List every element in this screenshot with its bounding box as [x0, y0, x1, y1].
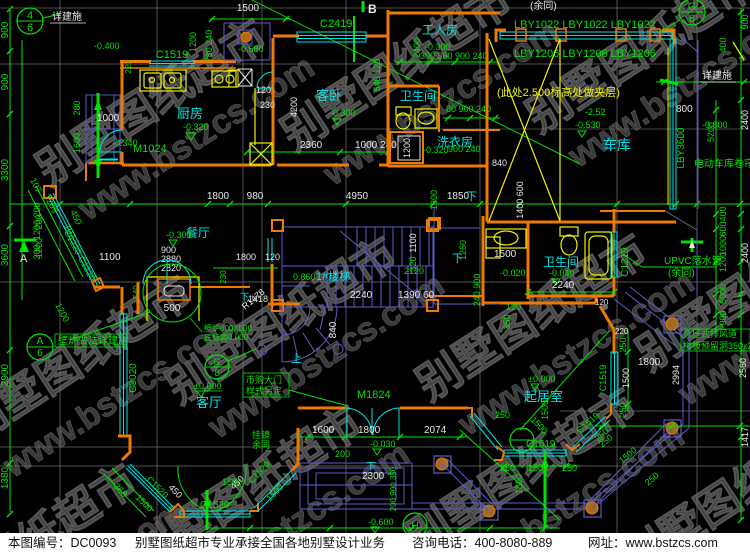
svg-text:-2.52: -2.52: [585, 107, 606, 117]
svg-text:840: 840: [328, 321, 339, 338]
svg-text:(余同): (余同): [668, 266, 695, 279]
svg-text:540 120: 540 120: [372, 59, 382, 92]
svg-text:-0.400: -0.400: [94, 41, 120, 51]
svg-text:G: G: [688, 1, 697, 13]
svg-text:B: B: [368, 2, 377, 16]
svg-text:2360: 2360: [300, 140, 323, 151]
svg-text:80 900 240: 80 900 240: [446, 104, 491, 114]
svg-text:(余同): (余同): [530, 0, 557, 12]
svg-text:250: 250: [618, 337, 628, 352]
svg-text:1100: 1100: [408, 233, 418, 252]
svg-text:C1519: C1519: [156, 49, 188, 61]
svg-text:LBY3600: LBY3600: [676, 127, 687, 169]
svg-text:上: 上: [291, 352, 302, 365]
svg-text:600: 600: [718, 221, 728, 236]
svg-text:2074: 2074: [424, 425, 447, 436]
svg-text:车库: 车库: [603, 137, 631, 153]
svg-text:120: 120: [506, 302, 521, 312]
svg-text:5000: 5000: [718, 284, 728, 304]
svg-text:2400: 2400: [740, 243, 750, 263]
svg-text:本图编号：DC0093: 本图编号：DC0093: [8, 535, 116, 550]
svg-text:4950: 4950: [346, 191, 369, 202]
svg-text:-0.580: -0.580: [238, 44, 264, 54]
svg-text:M1024: M1024: [133, 143, 167, 155]
svg-text:1100: 1100: [99, 252, 121, 263]
svg-text:厨房: 厨房: [177, 106, 203, 121]
svg-text:200: 200: [32, 244, 42, 259]
svg-text:-0.020: -0.020: [500, 268, 526, 278]
svg-text:-0.530: -0.530: [575, 120, 601, 130]
svg-text:详建施: 详建施: [52, 10, 82, 23]
svg-text:900: 900: [0, 21, 11, 38]
svg-text:780 240: 780 240: [204, 30, 214, 63]
svg-text:1800: 1800: [236, 252, 256, 262]
svg-text:350: 350: [502, 314, 512, 329]
svg-text:详建施: 详建施: [702, 69, 732, 82]
svg-text:6: 6: [27, 22, 33, 34]
svg-text:840: 840: [492, 158, 507, 168]
svg-text:220: 220: [615, 327, 629, 336]
svg-text:-0.320: -0.320: [423, 145, 449, 155]
svg-text:250: 250: [618, 402, 628, 417]
svg-text:300 360 900 240: 300 360 900 240: [420, 51, 488, 61]
svg-text:1800: 1800: [638, 357, 661, 368]
svg-text:-0.040: -0.040: [549, 268, 575, 278]
svg-text:样式另定: 样式另定: [246, 385, 282, 396]
svg-text:电动车库卷帘门: 电动车库卷帘门: [694, 157, 750, 170]
svg-text:网址：www.bstzcs.com: 网址：www.bstzcs.com: [588, 536, 718, 550]
svg-text:400: 400: [718, 206, 728, 221]
svg-text:壁炉做法详建施: 壁炉做法详建施: [58, 334, 128, 347]
svg-text:1000: 1000: [97, 113, 120, 124]
svg-text:120: 120: [256, 85, 271, 95]
svg-text:200: 200: [32, 202, 42, 217]
svg-text:C3020: C3020: [128, 363, 139, 393]
svg-text:2240: 2240: [552, 280, 575, 291]
svg-text:咨询电话：400-8080-889: 咨询电话：400-8080-889: [412, 535, 552, 550]
svg-text:-0.800: -0.800: [702, 120, 728, 130]
svg-text:800: 800: [676, 104, 693, 115]
svg-text:1260: 1260: [458, 240, 468, 260]
svg-text:1000: 1000: [718, 236, 728, 256]
svg-text:8: 8: [214, 368, 219, 378]
svg-text:C1519: C1519: [598, 365, 608, 392]
svg-text:下: 下: [366, 462, 376, 473]
svg-text:M1824: M1824: [357, 389, 391, 401]
svg-text:4: 4: [27, 10, 33, 22]
svg-text:1800: 1800: [514, 474, 524, 494]
svg-text:200 900 350: 200 900 350: [389, 466, 398, 511]
svg-text:2560: 2560: [738, 358, 748, 378]
svg-text:A: A: [37, 336, 44, 347]
svg-text:900: 900: [718, 310, 728, 325]
svg-text:下: 下: [466, 191, 477, 203]
svg-text:市购大门: 市购大门: [246, 374, 282, 385]
svg-text:1380: 1380: [0, 466, 11, 489]
svg-text:负压式排风道: 负压式排风道: [683, 328, 737, 339]
svg-text:楼板预留洞350x290: 楼板预留洞350x290: [683, 340, 750, 351]
svg-text:320: 320: [408, 256, 418, 271]
svg-text:2900: 2900: [0, 363, 11, 386]
svg-text:1400 600: 1400 600: [515, 181, 525, 219]
svg-text:±0.000: ±0.000: [528, 374, 555, 384]
svg-text:2994: 2994: [671, 365, 681, 385]
svg-text:1500: 1500: [237, 3, 260, 14]
svg-text:(此处2.500标高处做夹层): (此处2.500标高处做夹层): [497, 85, 620, 99]
svg-text:6: 6: [37, 348, 43, 359]
svg-text:1500: 1500: [621, 368, 631, 388]
svg-text:3300: 3300: [0, 158, 11, 181]
svg-text:4200: 4200: [289, 97, 299, 117]
svg-text:-0.300: -0.300: [330, 108, 356, 118]
svg-text:1800: 1800: [207, 191, 230, 202]
svg-text:客卧: 客卧: [316, 88, 342, 103]
svg-text:-0.600: -0.600: [368, 517, 394, 527]
svg-text:400: 400: [718, 37, 728, 52]
svg-text:280: 280: [72, 100, 82, 115]
svg-text:1#楼梯: 1#楼梯: [316, 269, 350, 283]
svg-text:壁炉800X500: 壁炉800X500: [204, 323, 253, 333]
svg-text:240 900: 240 900: [472, 274, 482, 307]
svg-text:-0.340: -0.340: [112, 138, 138, 148]
svg-text:LBY1206 LBY1206 LBY1206: LBY1206 LBY1206 LBY1206: [514, 48, 656, 60]
svg-text:1600: 1600: [72, 133, 82, 153]
svg-text:C1519: C1519: [526, 439, 556, 450]
svg-text:230: 230: [260, 100, 275, 110]
svg-text:A: A: [20, 253, 28, 265]
svg-text:1200: 1200: [188, 32, 198, 52]
svg-text:LBY1022 LBY1022 LBY1022: LBY1022 LBY1022 LBY1022: [514, 19, 656, 31]
svg-text:H: H: [411, 521, 418, 532]
svg-text:120: 120: [265, 252, 280, 262]
svg-text:220: 220: [124, 60, 133, 74]
svg-text:900: 900: [0, 73, 11, 90]
svg-text:挂镜: 挂镜: [252, 429, 270, 440]
svg-text:别墅图纸超市专业承接全国各地别墅设计业务: 别墅图纸超市专业承接全国各地别墅设计业务: [135, 535, 385, 550]
svg-text:0.860: 0.860: [293, 272, 316, 282]
svg-text:2400: 2400: [740, 110, 750, 130]
svg-text:230: 230: [219, 270, 228, 284]
svg-text:卫生间: 卫生间: [543, 255, 579, 269]
svg-text:-0.300: -0.300: [166, 230, 192, 240]
svg-text:G: G: [213, 357, 220, 367]
svg-text:250: 250: [562, 463, 577, 473]
svg-text:1200: 1200: [32, 220, 42, 240]
svg-text:500: 500: [164, 303, 181, 314]
svg-text:1200: 1200: [402, 138, 412, 158]
svg-text:余同: 余同: [252, 439, 270, 450]
svg-text:1500: 1500: [540, 400, 550, 420]
svg-text:2240: 2240: [350, 290, 373, 301]
svg-text:900 240: 900 240: [448, 144, 481, 154]
svg-text:1500: 1500: [222, 477, 242, 487]
svg-text:C1219: C1219: [620, 247, 631, 277]
svg-text:客厅: 客厅: [196, 395, 222, 410]
svg-text:工人房: 工人房: [422, 22, 458, 37]
svg-text:3600: 3600: [0, 243, 11, 266]
svg-text:±0.000: ±0.000: [194, 381, 221, 391]
svg-text:1800: 1800: [358, 425, 381, 436]
svg-text:C2419: C2419: [320, 18, 352, 30]
svg-text:6: 6: [689, 13, 695, 25]
svg-text:-0.030: -0.030: [370, 439, 396, 449]
svg-text:1800: 1800: [429, 190, 439, 210]
svg-text:250: 250: [495, 410, 510, 420]
svg-text:卫生间: 卫生间: [400, 89, 436, 103]
svg-text:1600: 1600: [312, 425, 335, 436]
svg-text:UPVC落水管: UPVC落水管: [664, 254, 722, 267]
svg-text:-0.320: -0.320: [183, 122, 209, 132]
svg-text:1417: 1417: [740, 427, 750, 447]
svg-text:900: 900: [740, 14, 750, 29]
svg-text:200: 200: [335, 449, 350, 459]
svg-text:980: 980: [247, 191, 264, 202]
svg-text:底标高0.000: 底标高0.000: [204, 332, 249, 342]
svg-text:2400: 2400: [412, 38, 422, 58]
